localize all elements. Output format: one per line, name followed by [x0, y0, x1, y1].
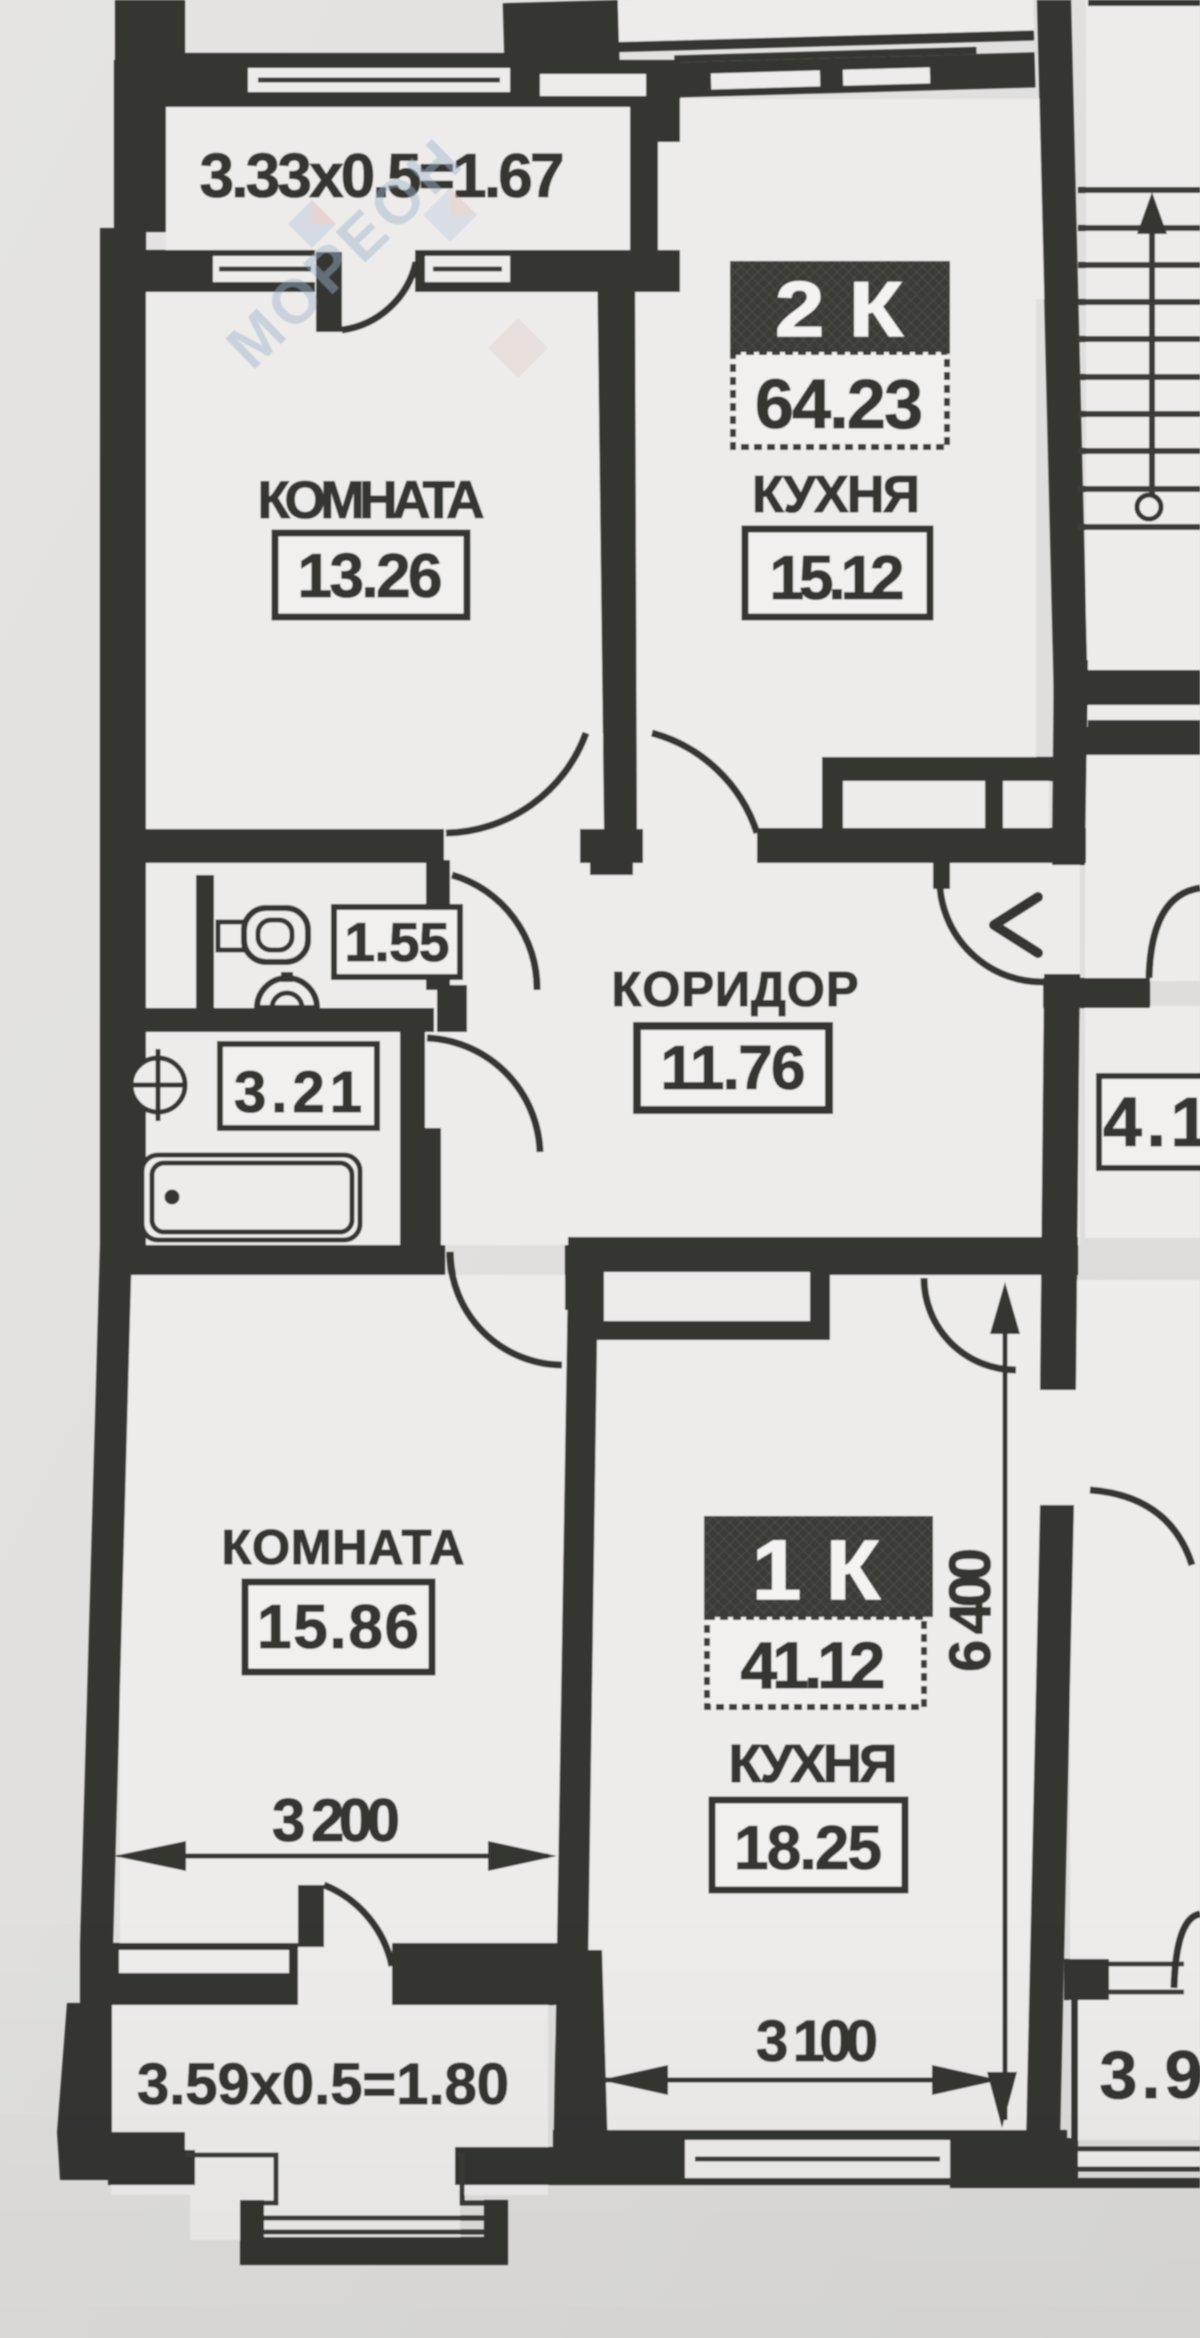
svg-text:КОМНАТА: КОМНАТА	[258, 471, 485, 530]
svg-text:13.26: 13.26	[298, 542, 443, 611]
svg-text:3 200: 3 200	[272, 1787, 400, 1854]
svg-text:2 К: 2 К	[775, 265, 903, 353]
svg-text:КОМНАТА: КОМНАТА	[222, 1521, 465, 1575]
svg-text:64.23: 64.23	[755, 365, 923, 443]
svg-text:6 400: 6 400	[938, 1548, 1003, 1672]
svg-text:3.21: 3.21	[234, 1060, 362, 1125]
svg-text:КУХНЯ: КУХНЯ	[752, 466, 920, 524]
svg-text:15.86: 15.86	[257, 1593, 419, 1662]
svg-text:18.25: 18.25	[734, 1814, 882, 1883]
svg-text:1 К: 1 К	[752, 1523, 881, 1617]
svg-text:11.76: 11.76	[661, 1034, 806, 1103]
svg-text:КОРИДОР: КОРИДОР	[612, 963, 859, 1017]
svg-text:4.18: 4.18	[1103, 1083, 1200, 1161]
svg-text:КУХНЯ: КУХНЯ	[729, 1734, 898, 1794]
svg-text:15.12: 15.12	[770, 544, 905, 613]
svg-text:1.55: 1.55	[345, 911, 450, 973]
svg-text:41.12: 41.12	[741, 1628, 886, 1702]
